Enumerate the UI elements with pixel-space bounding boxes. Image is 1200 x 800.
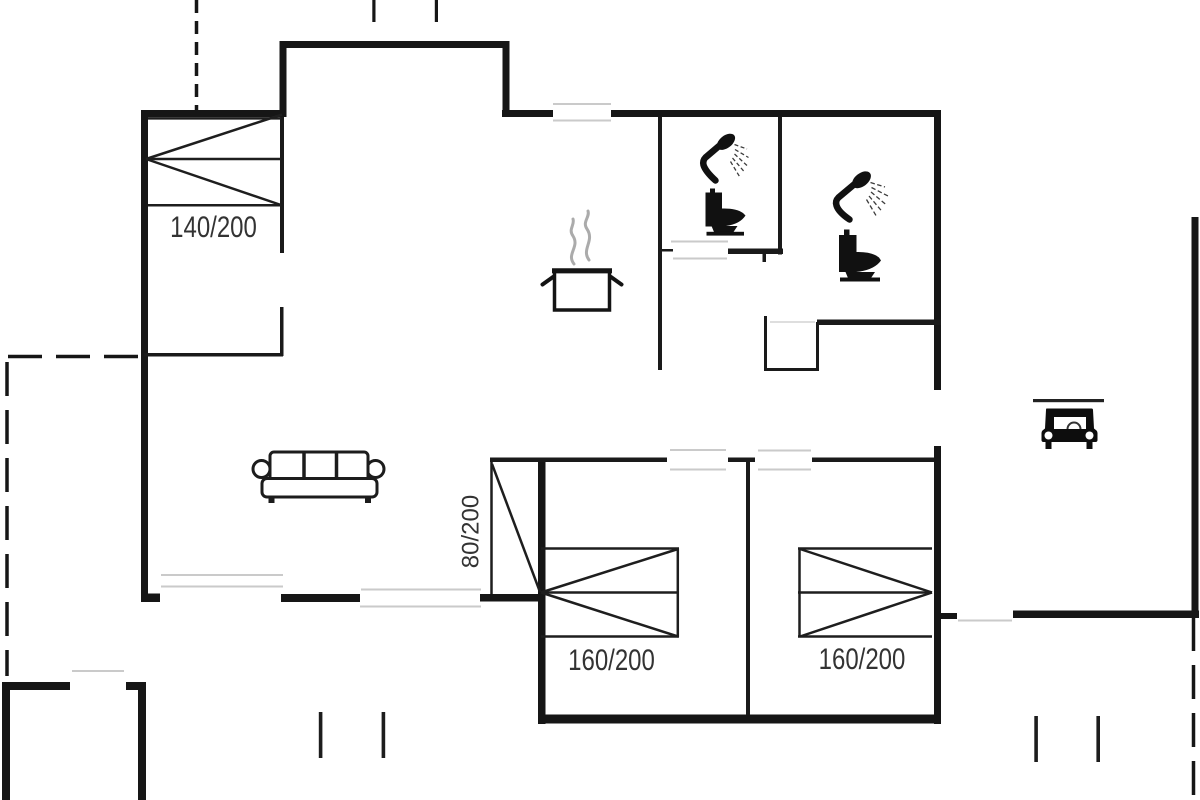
svg-text:160/200: 160/200	[819, 641, 906, 675]
svg-text:80/200: 80/200	[458, 495, 485, 568]
svg-text:160/200: 160/200	[568, 642, 655, 676]
svg-text:140/200: 140/200	[170, 209, 257, 243]
